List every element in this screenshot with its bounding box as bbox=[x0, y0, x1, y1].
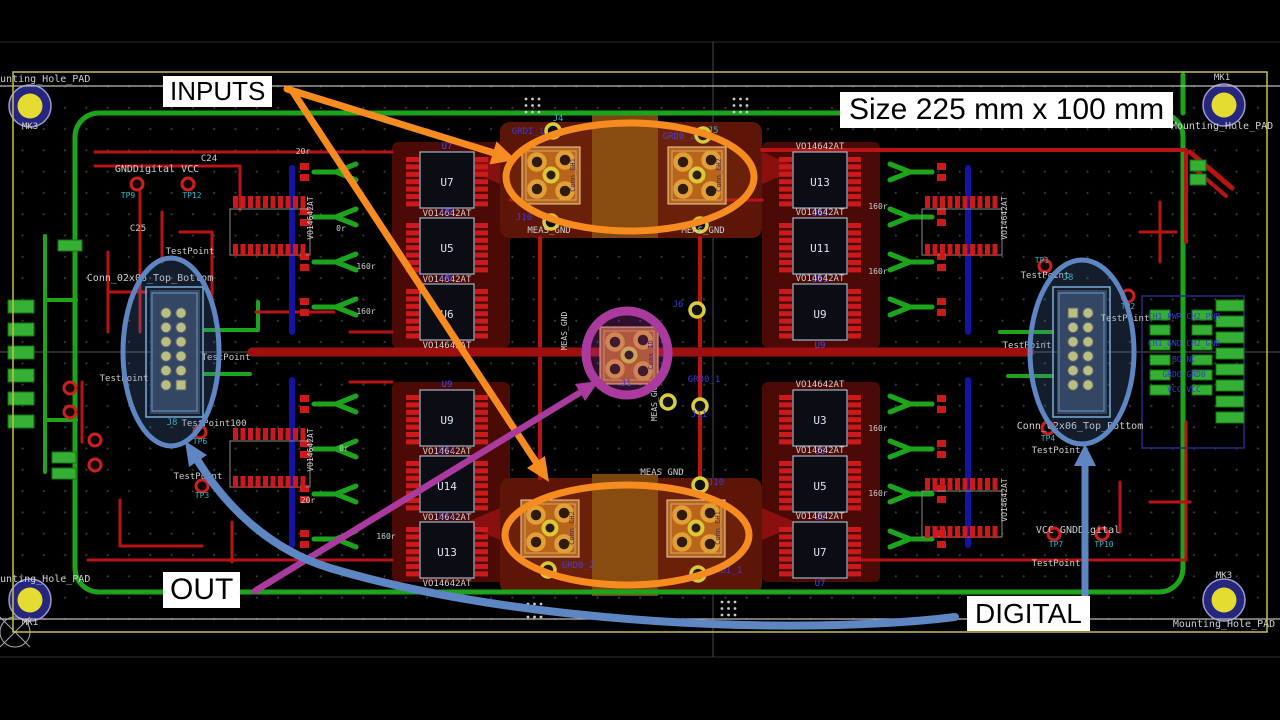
ic-pad bbox=[848, 461, 861, 466]
resistor-array-pad bbox=[948, 526, 953, 538]
ic-pad bbox=[848, 172, 861, 177]
silk-text: J10 bbox=[708, 478, 724, 488]
mounting-hole-pad bbox=[1212, 93, 1237, 118]
resistor-pad bbox=[937, 395, 946, 402]
ic-pad bbox=[848, 187, 861, 192]
ic-pad bbox=[848, 238, 861, 243]
ic-pad bbox=[779, 432, 792, 437]
silk-text: C25 bbox=[130, 224, 146, 234]
ic-pad bbox=[475, 534, 488, 539]
resistor-array-pad bbox=[985, 244, 990, 256]
ic-pad bbox=[779, 491, 792, 496]
ic-pad bbox=[848, 534, 861, 539]
resistor-array-pad bbox=[248, 244, 253, 256]
ic-pad bbox=[779, 542, 792, 547]
ic-pad bbox=[406, 402, 419, 407]
resistor-array-pad bbox=[271, 196, 276, 208]
resistor-array-pad bbox=[955, 478, 960, 490]
resistor-array-pad bbox=[970, 196, 975, 208]
ic-pad bbox=[406, 505, 419, 510]
resistor-array-pad bbox=[278, 196, 283, 208]
ic-pad bbox=[779, 461, 792, 466]
ic-pad bbox=[475, 498, 488, 503]
mounting-hole-pad bbox=[18, 94, 43, 119]
resistor-pad bbox=[300, 395, 309, 402]
ic-pad bbox=[475, 267, 488, 272]
ic-ref-label: U13 bbox=[437, 546, 457, 559]
resistor-array-pad bbox=[933, 196, 938, 208]
ic-pad bbox=[779, 289, 792, 294]
resistor-array-pad bbox=[241, 244, 246, 256]
ic-pad bbox=[406, 542, 419, 547]
mounting-hole[interactable] bbox=[1203, 84, 1245, 126]
silk-text: VCC GNDDigital bbox=[1036, 525, 1120, 536]
edge-pad[interactable] bbox=[8, 300, 34, 313]
ic-pad bbox=[406, 187, 419, 192]
ic-pad bbox=[779, 260, 792, 265]
via bbox=[527, 616, 530, 619]
edge-pad[interactable] bbox=[52, 468, 76, 479]
test-pad-red[interactable] bbox=[64, 406, 76, 418]
silk-text: 160r bbox=[868, 267, 887, 276]
ic-pad bbox=[406, 395, 419, 400]
resistor-pad bbox=[937, 264, 946, 271]
ic-pad bbox=[475, 432, 488, 437]
ic-annotation: U7 bbox=[815, 579, 826, 589]
resistor-array-pad bbox=[985, 478, 990, 490]
ic-annotation: U9 bbox=[442, 380, 453, 390]
ic-pad bbox=[848, 245, 861, 250]
ic-pad bbox=[475, 319, 488, 324]
via bbox=[739, 98, 742, 101]
ic-annotation: VO14642AT bbox=[796, 208, 845, 218]
via bbox=[531, 104, 534, 107]
ic-pad bbox=[779, 187, 792, 192]
silk-text: VCC VCC bbox=[1167, 385, 1201, 394]
ic-pad bbox=[848, 417, 861, 422]
silk-text: TP9 bbox=[121, 191, 136, 200]
silk-text: 0r bbox=[339, 444, 349, 453]
resistor-array-pad bbox=[970, 526, 975, 538]
ic-annotation: U6 bbox=[442, 274, 453, 284]
resistor-array-pad bbox=[286, 476, 291, 488]
via bbox=[525, 98, 528, 101]
ic-pad bbox=[475, 439, 488, 444]
ic-pad bbox=[779, 201, 792, 206]
via bbox=[734, 607, 737, 610]
resistor-pad bbox=[300, 163, 309, 170]
ic-ref-label: U11 bbox=[810, 242, 830, 255]
ic-ref-label: U5 bbox=[440, 242, 453, 255]
resistor-array-pad bbox=[278, 428, 283, 440]
resistor-pad bbox=[937, 406, 946, 413]
via bbox=[721, 614, 724, 617]
via bbox=[733, 98, 736, 101]
edge-pad[interactable] bbox=[8, 323, 34, 336]
ic-pad bbox=[779, 439, 792, 444]
silk-text: TP7 bbox=[1049, 540, 1064, 549]
io-pad[interactable] bbox=[1216, 380, 1244, 391]
ic-pad bbox=[779, 157, 792, 162]
ic-annotation: U13 bbox=[439, 512, 455, 522]
resistor-array-pad bbox=[263, 428, 268, 440]
resistor-array-pad bbox=[278, 476, 283, 488]
edge-pad[interactable] bbox=[1190, 160, 1206, 171]
resistor-pad bbox=[937, 496, 946, 503]
ic-pad bbox=[848, 505, 861, 510]
resistor-array-pad bbox=[933, 526, 938, 538]
via bbox=[739, 111, 742, 114]
resistor-pad bbox=[937, 174, 946, 181]
ic-pad bbox=[848, 439, 861, 444]
resistor-pad bbox=[300, 174, 309, 181]
resistor-array-pad bbox=[985, 526, 990, 538]
resistor-array-pad bbox=[985, 196, 990, 208]
ic-pad bbox=[406, 410, 419, 415]
ic-pad bbox=[779, 483, 792, 488]
resistor-pad bbox=[300, 406, 309, 413]
resistor-array-pad bbox=[263, 244, 268, 256]
ic-pad bbox=[475, 333, 488, 338]
ic-pad bbox=[848, 260, 861, 265]
ic-pad bbox=[848, 402, 861, 407]
io-pad[interactable] bbox=[1150, 355, 1170, 365]
edge-pad[interactable] bbox=[58, 240, 82, 251]
test-pad-red[interactable] bbox=[64, 382, 76, 394]
ic-pad bbox=[406, 201, 419, 206]
ic-pad bbox=[779, 402, 792, 407]
via bbox=[733, 104, 736, 107]
io-pad[interactable] bbox=[1192, 325, 1212, 335]
test-pad-red[interactable] bbox=[89, 459, 101, 471]
resistor-array-pad bbox=[955, 526, 960, 538]
resistor-array-pad bbox=[925, 478, 930, 490]
via bbox=[525, 104, 528, 107]
ic-pad bbox=[779, 333, 792, 338]
ic-pad bbox=[406, 549, 419, 554]
resistor-array-pad bbox=[970, 244, 975, 256]
silk-text: 160r bbox=[868, 202, 887, 211]
ic-pad bbox=[475, 410, 488, 415]
resistor-array-pad bbox=[933, 478, 938, 490]
resistor-array-pad bbox=[233, 476, 238, 488]
ic-pad bbox=[475, 417, 488, 422]
ic-pad bbox=[406, 230, 419, 235]
resistor-array-pad bbox=[278, 244, 283, 256]
resistor-pad bbox=[300, 541, 309, 548]
edge-pad[interactable] bbox=[8, 392, 34, 405]
via bbox=[734, 614, 737, 617]
pcb-annotated-screenshot: U7U7VO14642ATU5U5VO14642ATU6U6VO14642ATU… bbox=[0, 0, 1280, 720]
ic-pad bbox=[475, 238, 488, 243]
ic-pad bbox=[848, 491, 861, 496]
ic-pad bbox=[848, 223, 861, 228]
io-pad[interactable] bbox=[1216, 300, 1244, 311]
ic-pad bbox=[779, 164, 792, 169]
silk-text: TP10 bbox=[1094, 540, 1113, 549]
silk-text: CH1_GND CH2_GND bbox=[1148, 339, 1220, 348]
silk-text: J4 bbox=[553, 114, 564, 124]
ic-pad bbox=[406, 253, 419, 258]
io-pad[interactable] bbox=[1216, 396, 1244, 407]
resistor-pad bbox=[937, 219, 946, 226]
ic-pad bbox=[779, 223, 792, 228]
ic-pad bbox=[406, 483, 419, 488]
resistor-array-pad bbox=[978, 526, 983, 538]
silk-text: TP3 bbox=[195, 491, 210, 500]
ic-annotation: U9 bbox=[815, 341, 826, 351]
ic-pad bbox=[779, 179, 792, 184]
ic-pad bbox=[475, 491, 488, 496]
ic-pad bbox=[848, 319, 861, 324]
via bbox=[727, 614, 730, 617]
ic-pad bbox=[475, 483, 488, 488]
ic-pad bbox=[848, 542, 861, 547]
resistor-array-pad bbox=[233, 428, 238, 440]
ic-pad bbox=[475, 527, 488, 532]
edge-pad[interactable] bbox=[1190, 174, 1206, 185]
ic-pad bbox=[779, 319, 792, 324]
ic-annotation: VO14642AT bbox=[796, 274, 845, 284]
edge-pad[interactable] bbox=[8, 346, 34, 359]
io-pad[interactable] bbox=[1216, 348, 1244, 359]
ic-pad bbox=[848, 164, 861, 169]
silk-text: MK1 bbox=[22, 618, 38, 628]
resistor-array-pad bbox=[925, 526, 930, 538]
ic-pad bbox=[848, 468, 861, 473]
silk-text: MK3 bbox=[1216, 571, 1232, 581]
ic-pad bbox=[779, 468, 792, 473]
silk-text: Mounting_Hole_PAD bbox=[0, 574, 90, 585]
silk-text: 0r bbox=[336, 224, 346, 233]
silk-text: CH1_PWR CH2_PWR bbox=[1148, 312, 1220, 321]
resistor-array-pad bbox=[301, 476, 306, 488]
silk-text: GRDI_1 bbox=[512, 127, 545, 137]
test-pad-red[interactable] bbox=[131, 178, 143, 190]
ic-pad bbox=[475, 194, 488, 199]
resistor-array-pad bbox=[948, 244, 953, 256]
ic-annotation: U7 bbox=[442, 142, 453, 152]
silk-text: 20r bbox=[296, 147, 311, 156]
mounting-hole[interactable] bbox=[9, 85, 51, 127]
ic-pad bbox=[848, 267, 861, 272]
ic-annotation: VO14642AT bbox=[796, 512, 845, 522]
annotation-label-board-size: Size 225 mm x 100 mm bbox=[840, 92, 1173, 128]
ic-pad bbox=[406, 194, 419, 199]
via bbox=[533, 616, 536, 619]
ic-pad bbox=[475, 468, 488, 473]
ic-pad bbox=[406, 461, 419, 466]
test-pad-yellow[interactable] bbox=[690, 303, 704, 317]
ic-pad bbox=[779, 534, 792, 539]
resistor-array-pad bbox=[248, 196, 253, 208]
ic-pad bbox=[475, 557, 488, 562]
ic-pad bbox=[475, 245, 488, 250]
ic-pad bbox=[848, 564, 861, 569]
ic-pad bbox=[475, 164, 488, 169]
ic-pad bbox=[779, 230, 792, 235]
ic-pad bbox=[406, 333, 419, 338]
resistor-array-pad bbox=[286, 428, 291, 440]
ic-pad bbox=[406, 238, 419, 243]
silk-text: GRD0 GRD0 bbox=[1162, 370, 1206, 379]
ic-pad bbox=[475, 549, 488, 554]
resistor-array-pad bbox=[241, 196, 246, 208]
ic-pad bbox=[406, 296, 419, 301]
silk-text: Mounting_Hole_PAD bbox=[1173, 619, 1275, 630]
ic-pad bbox=[406, 311, 419, 316]
ic-annotation: U14 bbox=[439, 446, 455, 456]
highlight-ellipse-inputs-top bbox=[506, 123, 754, 231]
silk-text: Mounting_Hole_PAD bbox=[1171, 121, 1273, 132]
via bbox=[746, 98, 749, 101]
ic-pad bbox=[848, 476, 861, 481]
ic-pad bbox=[475, 230, 488, 235]
ic-pad bbox=[848, 333, 861, 338]
ic-pad bbox=[779, 267, 792, 272]
resistor-array-pad bbox=[301, 428, 306, 440]
resistor-array-pad bbox=[293, 244, 298, 256]
ic-pad bbox=[779, 476, 792, 481]
resistor-array-pad bbox=[256, 196, 261, 208]
resistor-array-pad bbox=[286, 244, 291, 256]
ic-ref-label: U9 bbox=[813, 308, 826, 321]
resistor-pad bbox=[937, 163, 946, 170]
ic-pad bbox=[848, 179, 861, 184]
ic-pad bbox=[779, 564, 792, 569]
ic-pad bbox=[779, 326, 792, 331]
io-pad[interactable] bbox=[1216, 332, 1244, 343]
resistor-array-pad bbox=[963, 526, 968, 538]
ic-pad bbox=[848, 311, 861, 316]
via bbox=[525, 111, 528, 114]
ic-pad bbox=[848, 425, 861, 430]
ic-pad bbox=[848, 432, 861, 437]
ic-annotation: VO14642AT bbox=[796, 142, 845, 152]
ic-pad bbox=[475, 402, 488, 407]
ic-pad bbox=[779, 304, 792, 309]
silk-text: 160r bbox=[376, 532, 395, 541]
via bbox=[531, 98, 534, 101]
silk-text: 160r bbox=[356, 307, 375, 316]
ic-pad bbox=[848, 253, 861, 258]
resistor-array-pad bbox=[301, 244, 306, 256]
ic-ref-label: U7 bbox=[440, 176, 453, 189]
silk-text: MK1 bbox=[1214, 73, 1230, 83]
ic-pad bbox=[475, 395, 488, 400]
io-pad[interactable] bbox=[1216, 412, 1244, 423]
ic-pad bbox=[475, 260, 488, 265]
edge-pad[interactable] bbox=[52, 452, 76, 463]
resistor-array-pad bbox=[271, 244, 276, 256]
io-pad[interactable] bbox=[1216, 364, 1244, 375]
ic-ref-label: U7 bbox=[813, 546, 826, 559]
silk-text: TestPoint bbox=[166, 247, 215, 257]
io-pad[interactable] bbox=[1216, 316, 1244, 327]
resistor-array-pad bbox=[293, 428, 298, 440]
io-pad[interactable] bbox=[1150, 325, 1170, 335]
ic-pad bbox=[406, 326, 419, 331]
via bbox=[727, 601, 730, 604]
resistor-array-pad bbox=[993, 526, 998, 538]
silk-text: 160r bbox=[356, 262, 375, 271]
ic-pad bbox=[475, 201, 488, 206]
silk-text: J10 bbox=[516, 213, 532, 223]
resistor-array-pad bbox=[940, 196, 945, 208]
ic-pad bbox=[779, 571, 792, 576]
resistor-pad bbox=[300, 530, 309, 537]
via bbox=[540, 616, 543, 619]
edge-pad[interactable] bbox=[8, 369, 34, 382]
via bbox=[721, 601, 724, 604]
ic-pad bbox=[779, 505, 792, 510]
resistor-array-pad bbox=[993, 244, 998, 256]
ic-pad bbox=[406, 304, 419, 309]
resistor-pad bbox=[300, 264, 309, 271]
resistor-array-pad bbox=[970, 478, 975, 490]
mounting-hole-pad bbox=[18, 588, 43, 613]
ic-pad bbox=[848, 326, 861, 331]
resistor-array-pad bbox=[978, 244, 983, 256]
via bbox=[538, 104, 541, 107]
via bbox=[746, 111, 749, 114]
test-pad-yellow[interactable] bbox=[661, 395, 675, 409]
ic-pad bbox=[406, 564, 419, 569]
edge-pad[interactable] bbox=[8, 415, 34, 428]
ic-pad bbox=[848, 483, 861, 488]
resistor-array-pad bbox=[948, 478, 953, 490]
resistor-pad bbox=[300, 309, 309, 316]
silk-text: MEAS_GND bbox=[527, 226, 570, 236]
ic-pad bbox=[475, 253, 488, 258]
resistor-array-pad bbox=[955, 244, 960, 256]
ic-pad bbox=[406, 557, 419, 562]
ic-annotation: VO14642AT bbox=[796, 380, 845, 390]
via bbox=[746, 104, 749, 107]
ic-pad bbox=[406, 468, 419, 473]
ic-pad bbox=[406, 289, 419, 294]
resistor-pad bbox=[937, 541, 946, 548]
via bbox=[739, 104, 742, 107]
ic-pad bbox=[475, 157, 488, 162]
ic-pad bbox=[406, 571, 419, 576]
resistor-array-pad bbox=[256, 428, 261, 440]
test-pad-red[interactable] bbox=[182, 178, 194, 190]
annotation-label-out: OUT bbox=[163, 572, 240, 608]
test-pad-red[interactable] bbox=[89, 434, 101, 446]
silk-text: TP6 bbox=[193, 437, 208, 446]
ic-pad bbox=[475, 223, 488, 228]
ic-pad bbox=[406, 179, 419, 184]
silk-text: 160r bbox=[868, 424, 887, 433]
resistor-array-pad bbox=[293, 196, 298, 208]
ic-pad bbox=[475, 326, 488, 331]
ic-pad bbox=[406, 172, 419, 177]
resistor-array-pad bbox=[263, 196, 268, 208]
ic-annotation: VO14642AT bbox=[796, 446, 845, 456]
ic-ref-label: U13 bbox=[810, 176, 830, 189]
resistor-array-pad bbox=[978, 196, 983, 208]
mounting-hole[interactable] bbox=[1203, 579, 1245, 621]
ic-pad bbox=[406, 417, 419, 422]
ic-pad bbox=[848, 395, 861, 400]
ic-pad bbox=[475, 187, 488, 192]
ic-ref-label: U9 bbox=[440, 414, 453, 427]
highlight-ellipse-left-header bbox=[123, 258, 219, 446]
silk-text: MEAS GND bbox=[640, 468, 683, 478]
mounting-hole[interactable] bbox=[9, 579, 51, 621]
resistor-pad bbox=[300, 298, 309, 305]
